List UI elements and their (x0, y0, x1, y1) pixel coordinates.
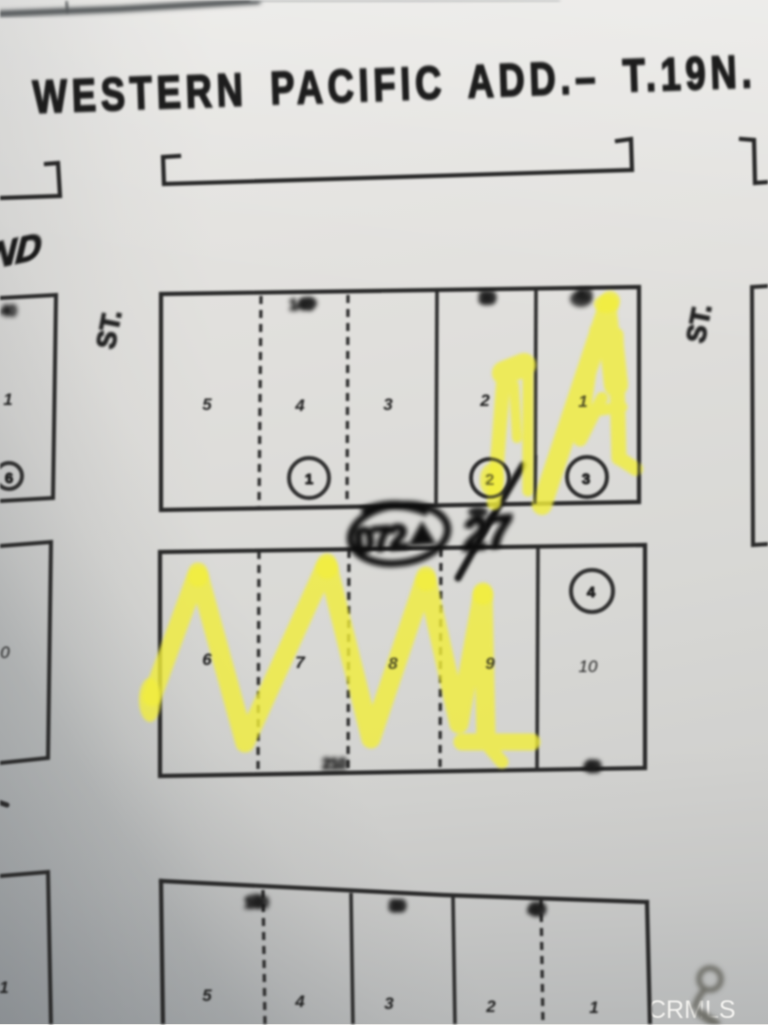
svg-text:5: 5 (202, 395, 212, 414)
svg-text:2: 2 (486, 472, 495, 489)
svg-text:6: 6 (5, 470, 13, 487)
svg-text:4: 4 (294, 396, 305, 415)
svg-text:8: 8 (388, 654, 398, 673)
svg-text:6: 6 (202, 650, 212, 669)
svg-text:3: 3 (383, 395, 393, 414)
svg-text:210: 210 (322, 756, 347, 773)
svg-text:2: 2 (479, 391, 490, 410)
svg-text:3: 3 (384, 994, 394, 1013)
svg-text:4: 4 (587, 584, 596, 601)
svg-text:1: 1 (589, 998, 598, 1017)
svg-text:10: 10 (579, 657, 598, 676)
svg-text:1: 1 (0, 978, 9, 997)
svg-text:40: 40 (0, 303, 17, 320)
svg-text:072: 072 (353, 518, 408, 560)
svg-text:4: 4 (294, 992, 305, 1011)
svg-text:1: 1 (305, 471, 313, 488)
svg-text:3: 3 (582, 471, 591, 488)
svg-text:1: 1 (578, 392, 587, 411)
svg-text:1: 1 (3, 390, 12, 409)
svg-text:2: 2 (485, 997, 496, 1016)
svg-text:7: 7 (295, 653, 306, 672)
svg-text:0: 0 (0, 643, 10, 662)
svg-text:9: 9 (485, 654, 495, 673)
svg-text:5: 5 (202, 986, 212, 1005)
